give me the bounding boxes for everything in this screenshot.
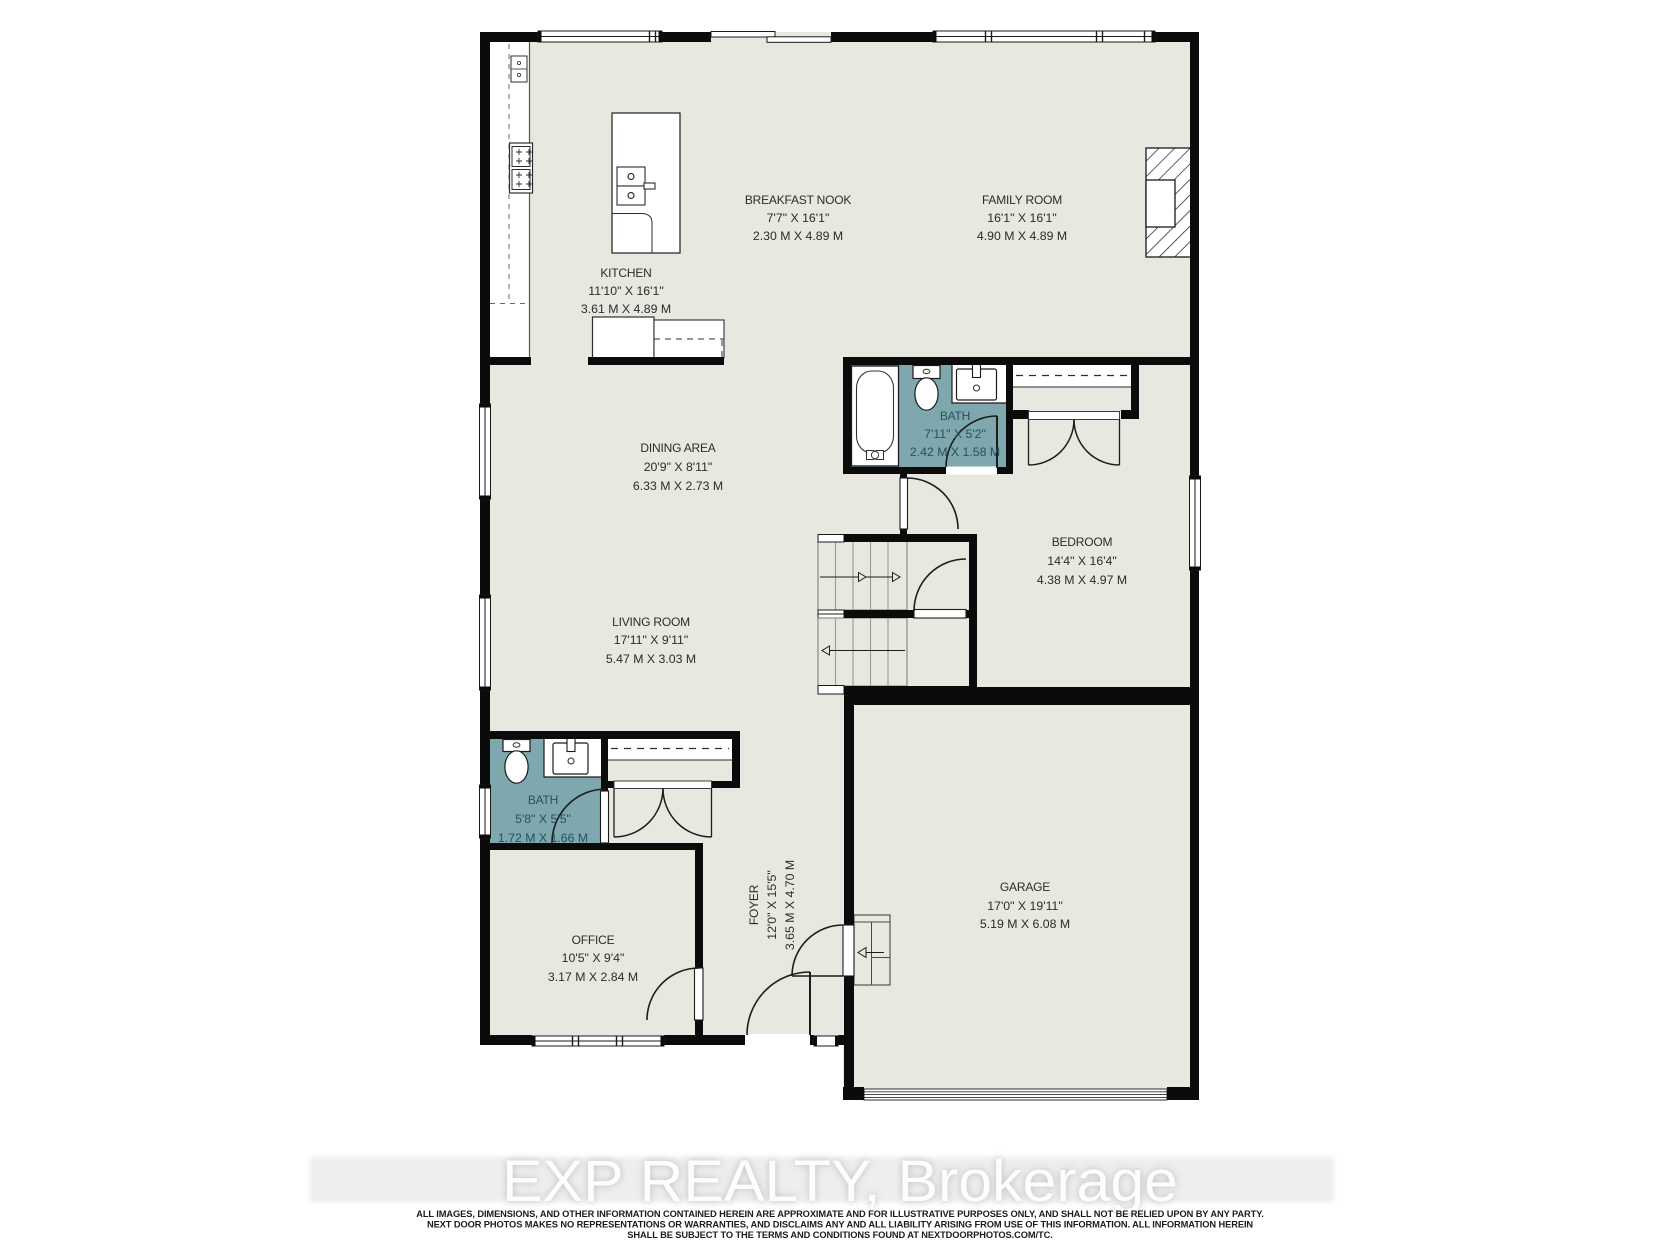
svg-text:LIVING ROOM: LIVING ROOM [612,615,690,629]
svg-text:NEXT DOOR PHOTOS MAKES NO REPR: NEXT DOOR PHOTOS MAKES NO REPRESENTATION… [427,1220,1253,1230]
svg-text:SHALL BE SUBJECT TO THE TERMS: SHALL BE SUBJECT TO THE TERMS AND CONDIT… [627,1230,1052,1240]
svg-text:ALL IMAGES, DIMENSIONS, AND OT: ALL IMAGES, DIMENSIONS, AND OTHER INFORM… [416,1209,1264,1219]
svg-text:12'0" X 15'5": 12'0" X 15'5" [765,870,779,940]
svg-text:16'1" X 16'1": 16'1" X 16'1" [987,211,1057,225]
svg-text:5.19 M X 6.08 M: 5.19 M X 6.08 M [980,917,1070,931]
svg-text:3.17 M X 2.84 M: 3.17 M X 2.84 M [548,970,638,984]
svg-text:4.38 M X 4.97 M: 4.38 M X 4.97 M [1037,573,1127,587]
svg-text:GARAGE: GARAGE [1000,880,1050,894]
svg-text:5.47 M X 3.03 M: 5.47 M X 3.03 M [606,652,696,666]
svg-text:DINING AREA: DINING AREA [640,441,715,455]
svg-text:3.61 M X 4.89 M: 3.61 M X 4.89 M [581,302,671,316]
svg-text:14'4" X 16'4": 14'4" X 16'4" [1047,554,1117,568]
svg-text:BEDROOM: BEDROOM [1052,535,1113,549]
svg-text:2.42 M X 1.58 M: 2.42 M X 1.58 M [910,445,1000,459]
svg-text:EXP REALTY, Brokerage: EXP REALTY, Brokerage [502,1149,1178,1214]
svg-text:2.30 M X 4.89 M: 2.30 M X 4.89 M [753,229,843,243]
svg-text:BREAKFAST NOOK: BREAKFAST NOOK [745,193,852,207]
svg-text:OFFICE: OFFICE [572,933,615,947]
svg-text:10'5" X 9'4": 10'5" X 9'4" [562,951,625,965]
svg-text:17'0" X 19'11": 17'0" X 19'11" [987,899,1062,913]
svg-text:BATH: BATH [528,793,558,807]
svg-text:3.65 M X 4.70 M: 3.65 M X 4.70 M [783,860,797,950]
svg-text:7'7" X 16'1": 7'7" X 16'1" [767,211,830,225]
svg-text:5'8" X 5'5": 5'8" X 5'5" [515,812,571,826]
svg-text:FOYER: FOYER [747,884,761,925]
svg-text:KITCHEN: KITCHEN [600,266,651,280]
svg-text:6.33 M X 2.73 M: 6.33 M X 2.73 M [633,479,723,493]
svg-text:17'11" X 9'11": 17'11" X 9'11" [614,633,689,647]
svg-text:1.72 M X 1.66 M: 1.72 M X 1.66 M [498,831,588,845]
svg-text:11'10" X 16'1": 11'10" X 16'1" [588,284,663,298]
svg-text:4.90 M X 4.89 M: 4.90 M X 4.89 M [977,229,1067,243]
svg-text:FAMILY ROOM: FAMILY ROOM [982,193,1062,207]
svg-text:20'9" X 8'11": 20'9" X 8'11" [644,460,713,474]
svg-text:BATH: BATH [940,409,970,423]
svg-text:7'11" X 5'2": 7'11" X 5'2" [924,427,986,441]
